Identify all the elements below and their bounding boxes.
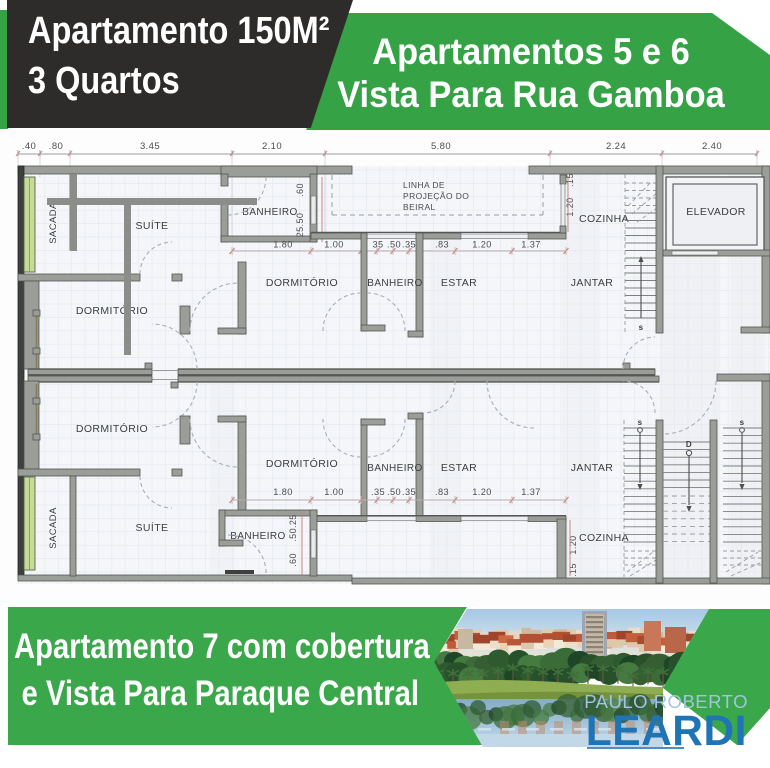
svg-text:1.00: 1.00 <box>324 487 343 497</box>
svg-text:.50: .50 <box>387 487 401 497</box>
svg-text:.15: .15 <box>568 563 578 577</box>
svg-text:2.40: 2.40 <box>702 141 722 152</box>
svg-text:.50.25: .50.25 <box>288 514 298 541</box>
svg-text:LINHA DE: LINHA DE <box>403 180 445 190</box>
svg-text:.83: .83 <box>435 487 449 497</box>
svg-text:SACADA: SACADA <box>48 507 59 549</box>
svg-text:BANHEIRO: BANHEIRO <box>230 531 285 542</box>
svg-text:DORMITÓRIO: DORMITÓRIO <box>266 276 338 289</box>
svg-text:COZINHA: COZINHA <box>579 532 629 544</box>
svg-text:5.80: 5.80 <box>431 141 451 152</box>
svg-text:.80: .80 <box>49 141 63 152</box>
svg-text:1.00: 1.00 <box>324 240 343 250</box>
svg-text:SUÍTE: SUÍTE <box>136 219 169 232</box>
svg-text:.40: .40 <box>22 141 36 152</box>
svg-text:DORMITÓRIO: DORMITÓRIO <box>76 422 148 435</box>
svg-text:.15: .15 <box>565 173 575 187</box>
svg-text:PROJEÇÃO DO: PROJEÇÃO DO <box>403 191 469 201</box>
svg-text:2.10: 2.10 <box>262 141 282 152</box>
svg-text:DORMITÓRIO: DORMITÓRIO <box>76 304 148 317</box>
svg-text:ELEVADOR: ELEVADOR <box>686 206 746 218</box>
svg-text:1.37: 1.37 <box>521 240 540 250</box>
svg-text:1.37: 1.37 <box>521 487 540 497</box>
svg-text:.50: .50 <box>387 240 401 250</box>
svg-text:1.80: 1.80 <box>273 487 292 497</box>
svg-text:SUÍTE: SUÍTE <box>136 521 169 534</box>
svg-text:25.50: 25.50 <box>295 213 305 238</box>
svg-text:BANHEIRO: BANHEIRO <box>367 278 422 289</box>
svg-text:1.20: 1.20 <box>565 197 575 216</box>
svg-text:1.20: 1.20 <box>472 240 491 250</box>
svg-text:JANTAR: JANTAR <box>571 277 613 289</box>
svg-text:s: s <box>638 418 643 427</box>
svg-text:.60: .60 <box>288 553 298 567</box>
svg-text:BANHEIRO: BANHEIRO <box>367 463 422 474</box>
svg-text:.83: .83 <box>435 240 449 250</box>
svg-text:COZINHA: COZINHA <box>579 213 629 225</box>
svg-text:3.45: 3.45 <box>140 141 160 152</box>
svg-text:1.20: 1.20 <box>472 487 491 497</box>
svg-text:BANHEIRO: BANHEIRO <box>242 207 297 218</box>
svg-text:s: s <box>639 323 644 332</box>
svg-text:.60: .60 <box>295 183 305 197</box>
svg-text:D: D <box>686 440 692 449</box>
svg-text:ESTAR: ESTAR <box>441 277 477 289</box>
svg-text:1.80: 1.80 <box>273 240 292 250</box>
svg-text:ESTAR: ESTAR <box>441 462 477 474</box>
svg-text:SACADA: SACADA <box>48 202 59 244</box>
svg-text:.35: .35 <box>402 487 416 497</box>
svg-text:DORMITÓRIO: DORMITÓRIO <box>266 457 338 470</box>
svg-text:1.20: 1.20 <box>568 535 578 554</box>
svg-text:BEIRAL: BEIRAL <box>403 202 436 212</box>
svg-text:s: s <box>740 418 745 427</box>
svg-text:2.24: 2.24 <box>606 141 626 152</box>
svg-text:JANTAR: JANTAR <box>571 462 613 474</box>
svg-text:35: 35 <box>372 240 383 250</box>
svg-text:.35: .35 <box>371 487 385 497</box>
